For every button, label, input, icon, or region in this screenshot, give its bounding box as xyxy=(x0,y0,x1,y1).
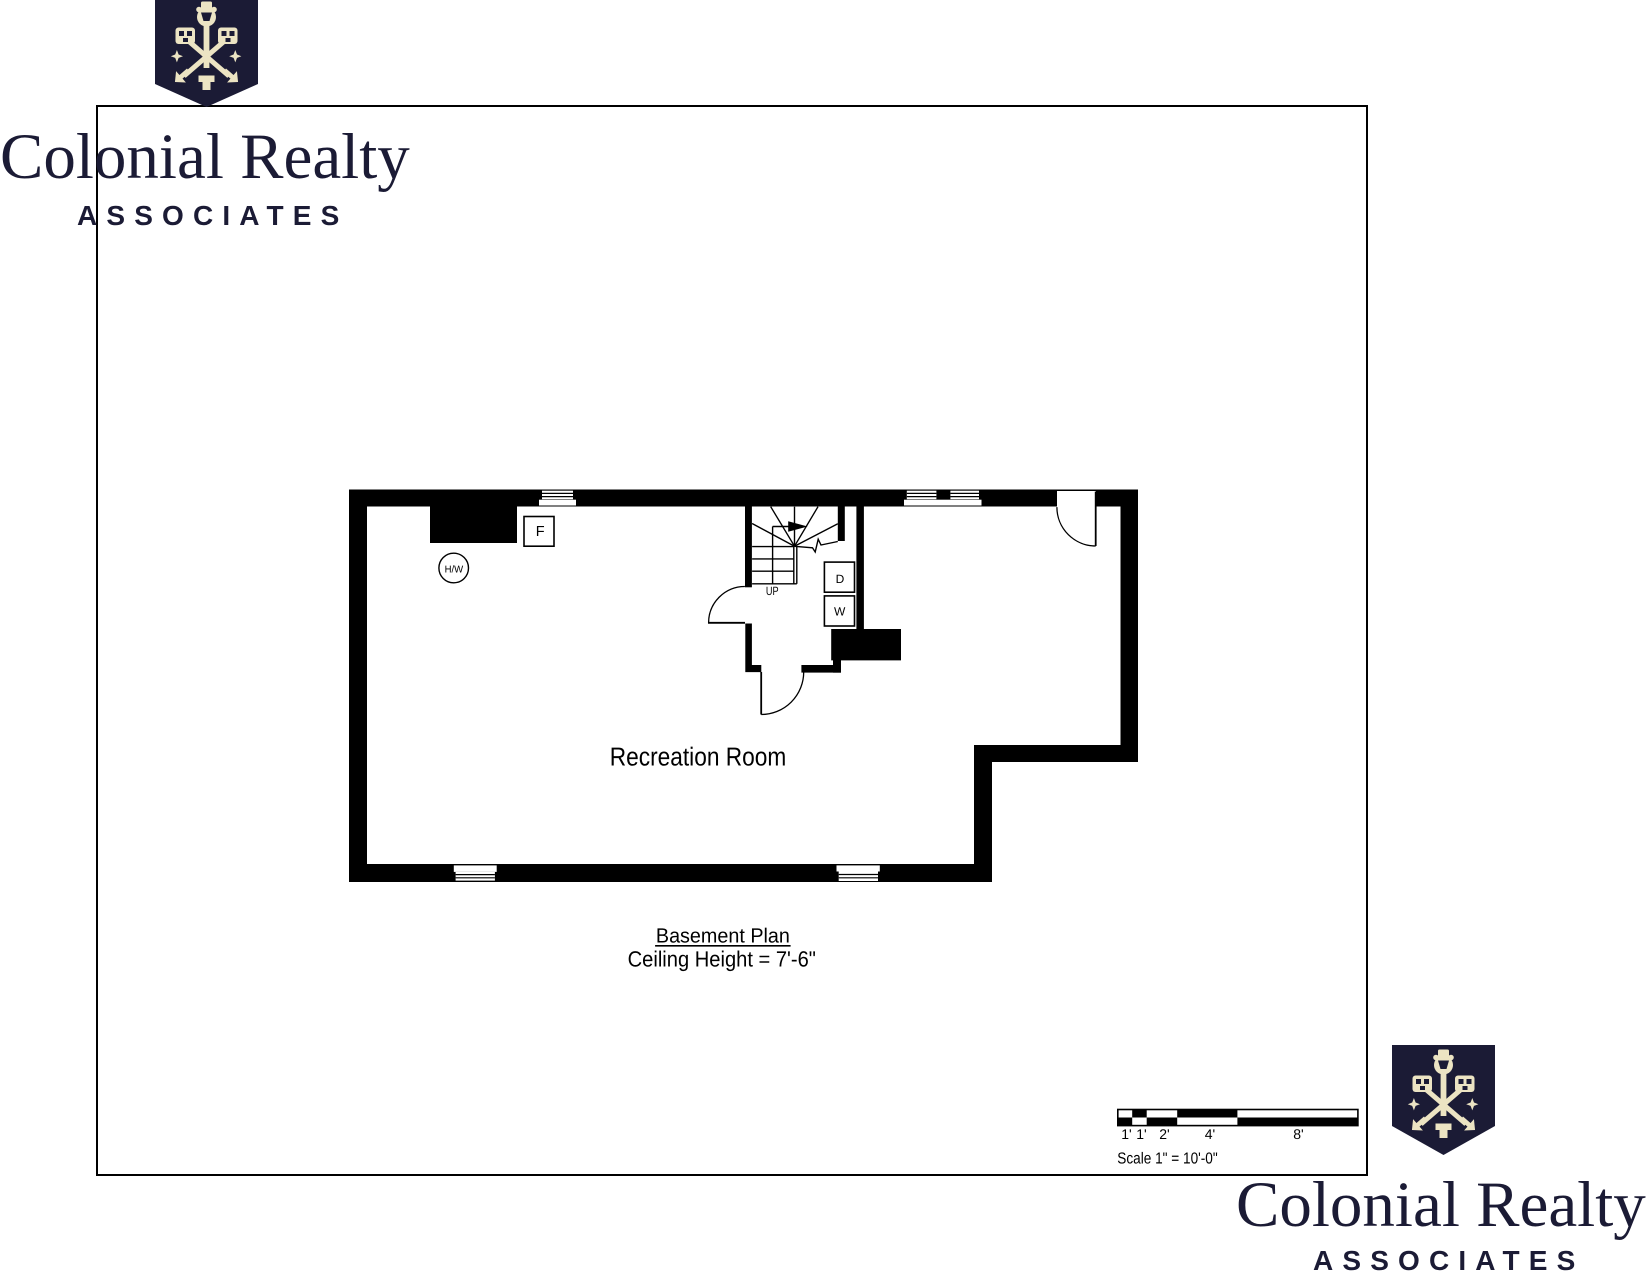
svg-text:D: D xyxy=(836,572,845,586)
svg-text:4': 4' xyxy=(1205,1126,1215,1142)
svg-text:1': 1' xyxy=(1121,1126,1131,1142)
svg-text:1': 1' xyxy=(1136,1126,1146,1142)
svg-text:W: W xyxy=(834,604,846,618)
svg-text:Basement Plan: Basement Plan xyxy=(656,925,790,948)
svg-text:H/W: H/W xyxy=(445,565,464,576)
svg-text:F: F xyxy=(536,524,545,540)
svg-text:8': 8' xyxy=(1293,1126,1303,1142)
svg-text:2': 2' xyxy=(1159,1126,1169,1142)
svg-text:Recreation Room: Recreation Room xyxy=(610,742,787,772)
svg-text:UP: UP xyxy=(766,584,779,598)
svg-text:Ceiling Height = 7'-6": Ceiling Height = 7'-6" xyxy=(628,946,816,971)
svg-text:Scale 1" = 10'-0": Scale 1" = 10'-0" xyxy=(1117,1151,1217,1168)
